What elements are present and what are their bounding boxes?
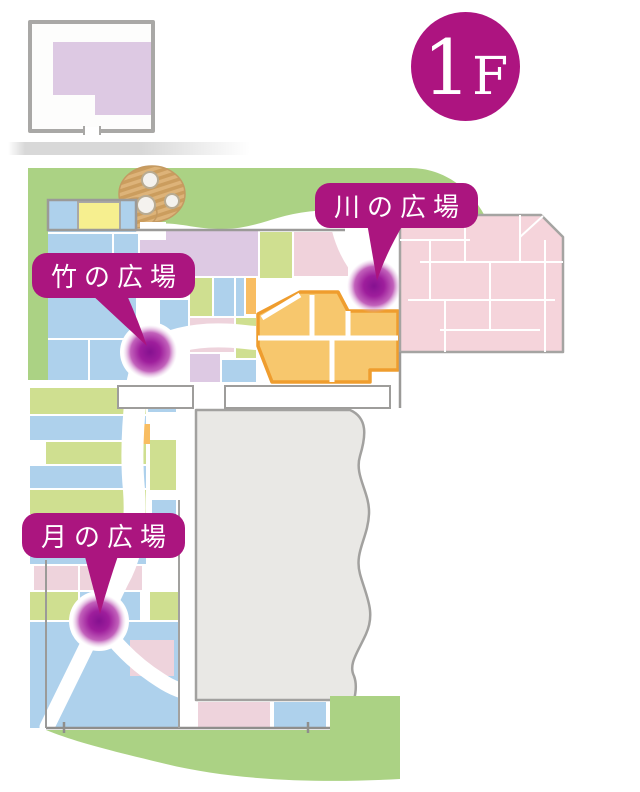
floor-plan — [0, 0, 640, 792]
floor-map-page: 1 F — [0, 0, 640, 792]
zone-courtyard-gray — [196, 410, 370, 700]
plaza-label-tsuki[interactable]: 月の広場 — [22, 513, 185, 558]
plaza-marker-kawa[interactable] — [347, 259, 401, 313]
zone-pink-block — [400, 215, 563, 352]
plaza-label-take-text: 竹の広場 — [44, 257, 183, 294]
plaza-label-kawa[interactable]: 川の広場 — [315, 183, 478, 228]
plaza-label-kawa-text: 川の広場 — [327, 187, 466, 224]
plaza-label-take[interactable]: 竹の広場 — [32, 253, 195, 298]
plaza-marker-take[interactable] — [123, 325, 177, 379]
plaza-label-tsuki-text: 月の広場 — [34, 517, 173, 554]
corridor-boxes — [118, 386, 390, 408]
